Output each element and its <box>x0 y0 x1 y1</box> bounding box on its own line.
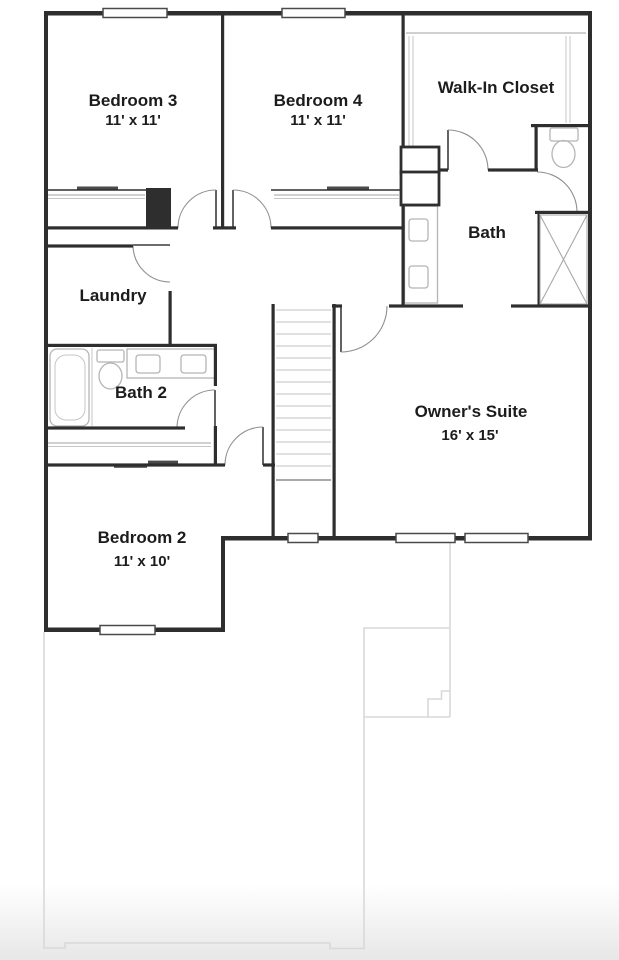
window <box>288 534 318 543</box>
room-dims-owners-suite: 16' x 15' <box>441 427 498 444</box>
floor-plan-drawing: Bedroom 3 11' x 11' Bedroom 4 11' x 11' … <box>0 0 619 960</box>
room-label-bedroom-3: Bedroom 3 <box>89 91 178 110</box>
room-label-laundry: Laundry <box>79 286 147 305</box>
room-label-bath-2: Bath 2 <box>115 383 167 402</box>
room-label-bedroom-2: Bedroom 2 <box>98 528 187 547</box>
window <box>465 534 528 543</box>
room-label-bath: Bath <box>468 223 506 242</box>
floor-plan-page: Bedroom 3 11' x 11' Bedroom 4 11' x 11' … <box>0 0 619 960</box>
bottom-shadow <box>0 885 619 960</box>
room-label-owners-suite: Owner's Suite <box>415 402 528 421</box>
room-dims-bedroom-3: 11' x 11' <box>105 112 161 129</box>
room-label-bedroom-4: Bedroom 4 <box>274 91 363 110</box>
room-label-walk-in-closet: Walk-In Closet <box>438 78 555 97</box>
window <box>282 9 345 18</box>
window <box>103 9 167 18</box>
room-dims-bedroom-2: 11' x 10' <box>114 553 170 570</box>
window <box>100 626 155 635</box>
room-dims-bedroom-4: 11' x 11' <box>290 112 346 129</box>
window <box>396 534 455 543</box>
